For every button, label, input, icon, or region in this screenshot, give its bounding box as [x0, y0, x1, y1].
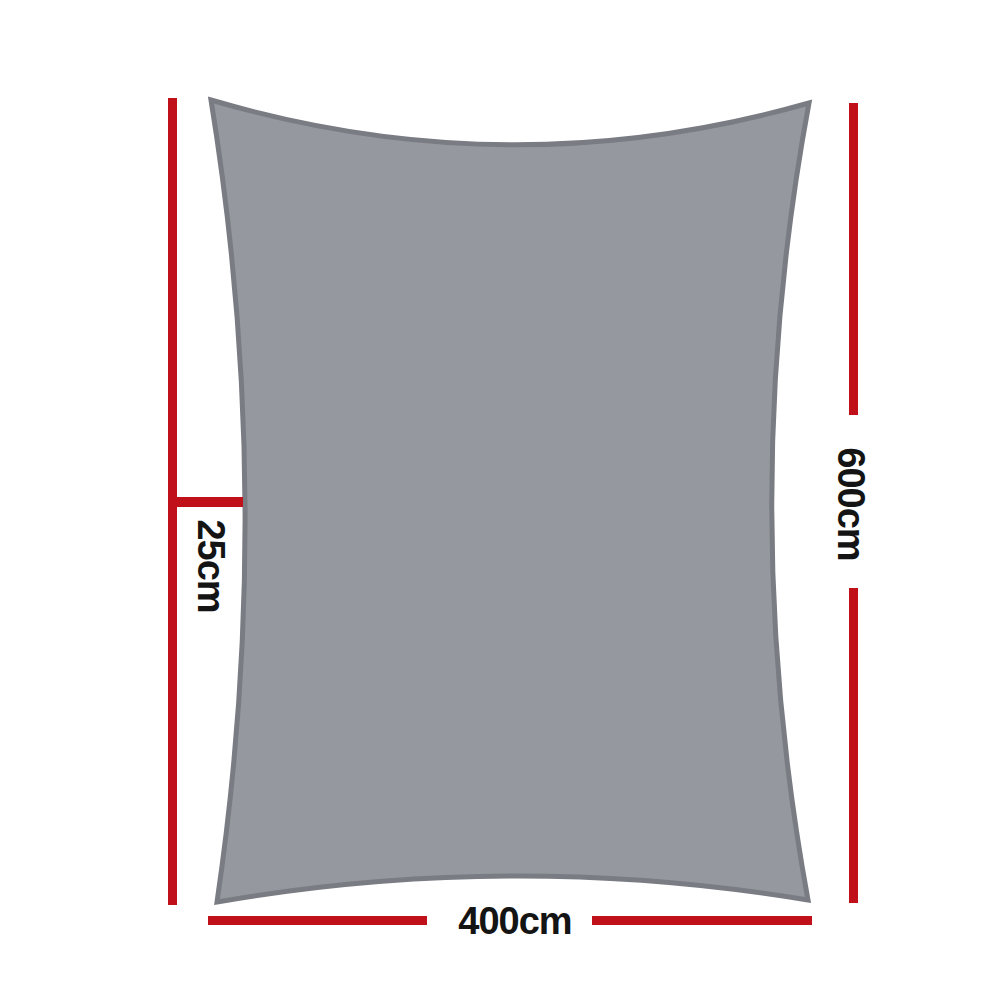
right-dimension-line-upper [849, 103, 858, 415]
shade-sail-dimension-diagram: 25cm 600cm 400cm [0, 0, 1000, 1000]
bottom-dimension-line-left [208, 916, 427, 925]
right-dimension-line-lower [849, 588, 858, 903]
sail-fabric-outline [211, 100, 809, 902]
bottom-dimension-line-right [592, 916, 812, 925]
left-dimension-tick [168, 497, 243, 507]
edge-offset-label: 25cm [192, 519, 230, 612]
bottom-width-label: 400cm [458, 902, 571, 940]
side-height-label: 600cm [832, 447, 870, 560]
